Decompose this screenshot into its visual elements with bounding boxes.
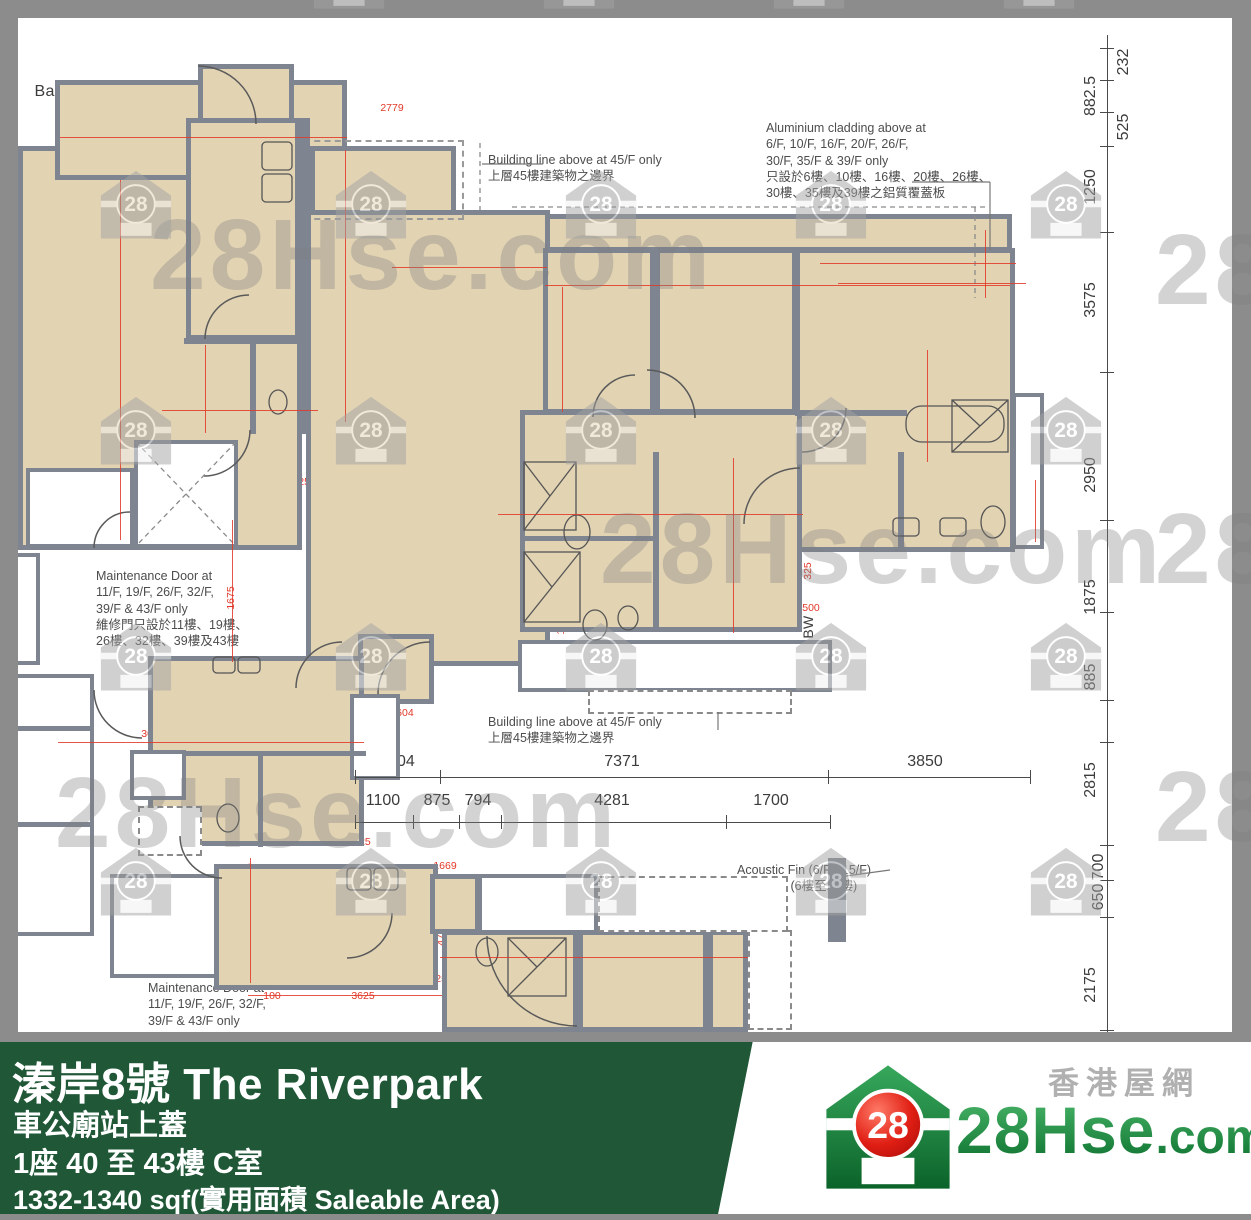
dim-tick bbox=[830, 815, 831, 829]
28-house-watermark-icon: 28 bbox=[792, 394, 870, 471]
28-house-watermark-icon: 28 bbox=[97, 394, 175, 471]
svg-text:28: 28 bbox=[819, 645, 842, 668]
red-dim-line bbox=[250, 858, 251, 983]
28-house-watermark-icon: 28 bbox=[562, 394, 640, 471]
floorplan: 2300170027791253350100195012501254000755… bbox=[0, 0, 1251, 1032]
red-dim-line bbox=[205, 345, 206, 433]
dim-tick bbox=[1100, 146, 1114, 147]
28-house-watermark-icon: 28 bbox=[792, 168, 870, 245]
28-house-watermark-icon: 28 bbox=[332, 168, 410, 245]
block-floor-unit: 1座 40 至 43樓 C室 bbox=[13, 1140, 263, 1182]
svg-text:28: 28 bbox=[124, 645, 147, 668]
28-house-watermark-icon: 28 bbox=[562, 620, 640, 697]
floorplan-page: 2300170027791253350100195012501254000755… bbox=[0, 0, 1251, 1220]
28-house-watermark-icon: 28 bbox=[332, 394, 410, 471]
watermark-text: 28Hse.com bbox=[1155, 750, 1251, 865]
estate-subtitle: 車公廟站上蓋 bbox=[13, 1102, 187, 1144]
svg-text:28: 28 bbox=[819, 870, 842, 893]
red-dim-line bbox=[440, 957, 748, 958]
svg-text:28: 28 bbox=[124, 419, 147, 442]
svg-text:28: 28 bbox=[589, 193, 612, 216]
left-border-band bbox=[0, 0, 18, 1032]
watermark-text: 28Hse.com bbox=[1155, 492, 1251, 607]
28hse-logo[interactable]: 28 28Hse.com 香港屋網 bbox=[820, 1054, 1250, 1204]
28-house-watermark-icon: 28 bbox=[1027, 168, 1105, 245]
saleable-area: 1332-1340 sqf(實用面積 Saleable Area) bbox=[13, 1178, 500, 1217]
28-house-watermark-icon: 28 bbox=[97, 845, 175, 922]
svg-text:28: 28 bbox=[1054, 193, 1077, 216]
28hse-house-icon: 28 bbox=[822, 1060, 954, 1194]
svg-text:28: 28 bbox=[124, 870, 147, 893]
28-house-watermark-icon: 28 bbox=[792, 845, 870, 922]
dim-tick bbox=[1100, 700, 1114, 701]
svg-text:28: 28 bbox=[1054, 645, 1077, 668]
red-dim-line bbox=[248, 995, 442, 996]
svg-text:28: 28 bbox=[359, 193, 382, 216]
dim-tick bbox=[1100, 48, 1114, 49]
svg-text:28: 28 bbox=[359, 870, 382, 893]
watermark-text: 28Hse.com bbox=[600, 492, 1164, 607]
red-dim-line bbox=[232, 520, 233, 662]
dim-tick bbox=[1100, 80, 1114, 81]
28hse-wordmark: 28Hse.com bbox=[956, 1092, 1251, 1168]
dim-tick bbox=[726, 815, 727, 829]
dim-tick bbox=[1100, 372, 1114, 373]
svg-text:28: 28 bbox=[589, 419, 612, 442]
dim-tick bbox=[1100, 612, 1114, 613]
logo-tagline: 香港屋網 bbox=[1048, 1058, 1200, 1103]
28-house-watermark-icon: 28 bbox=[332, 845, 410, 922]
dim-tick bbox=[1100, 742, 1114, 743]
red-dim-line bbox=[838, 283, 1026, 284]
28-house-watermark-icon: 28 bbox=[562, 168, 640, 245]
svg-text:28: 28 bbox=[359, 419, 382, 442]
red-dim-line bbox=[927, 350, 928, 462]
red-dim-line bbox=[820, 263, 1016, 264]
28-house-watermark-icon: 28 bbox=[792, 620, 870, 697]
28-house-watermark-icon: 28 bbox=[770, 0, 848, 15]
28-house-watermark-icon: 28 bbox=[1027, 394, 1105, 471]
dim-tick bbox=[828, 770, 829, 784]
svg-text:28: 28 bbox=[589, 870, 612, 893]
red-dim-line bbox=[60, 137, 347, 138]
svg-text:28: 28 bbox=[1054, 870, 1077, 893]
dim-tick bbox=[1100, 112, 1114, 113]
watermark-text: 28Hse.com bbox=[1155, 213, 1251, 328]
28-house-watermark-icon: 28 bbox=[1027, 845, 1105, 922]
28-house-watermark-icon: 28 bbox=[97, 620, 175, 697]
footer-top-band bbox=[0, 1032, 1251, 1042]
svg-text:28: 28 bbox=[124, 193, 147, 216]
svg-text:28: 28 bbox=[1054, 419, 1077, 442]
28-house-watermark-icon: 28 bbox=[1000, 0, 1078, 15]
footer-info-panel: 溱岸8號 The Riverpark 車公廟站上蓋 1座 40 至 43樓 C室… bbox=[0, 1042, 768, 1214]
dim-tick bbox=[1030, 770, 1031, 784]
red-dim-line bbox=[58, 742, 364, 743]
svg-text:28: 28 bbox=[819, 419, 842, 442]
red-dim-line bbox=[162, 410, 318, 411]
28-house-watermark-icon: 28 bbox=[1027, 620, 1105, 697]
28-house-watermark-icon: 28 bbox=[310, 0, 388, 15]
28-house-watermark-icon: 28 bbox=[97, 168, 175, 245]
bottom-border-band bbox=[0, 1214, 1251, 1220]
red-dim-line bbox=[985, 230, 986, 298]
svg-text:28: 28 bbox=[819, 193, 842, 216]
svg-text:28: 28 bbox=[867, 1104, 909, 1146]
svg-text:28: 28 bbox=[589, 645, 612, 668]
28-house-watermark-icon: 28 bbox=[332, 620, 410, 697]
dim-tick bbox=[1100, 1030, 1114, 1031]
svg-text:28: 28 bbox=[359, 645, 382, 668]
28-house-watermark-icon: 28 bbox=[540, 0, 618, 15]
28-house-watermark-icon: 28 bbox=[562, 845, 640, 922]
